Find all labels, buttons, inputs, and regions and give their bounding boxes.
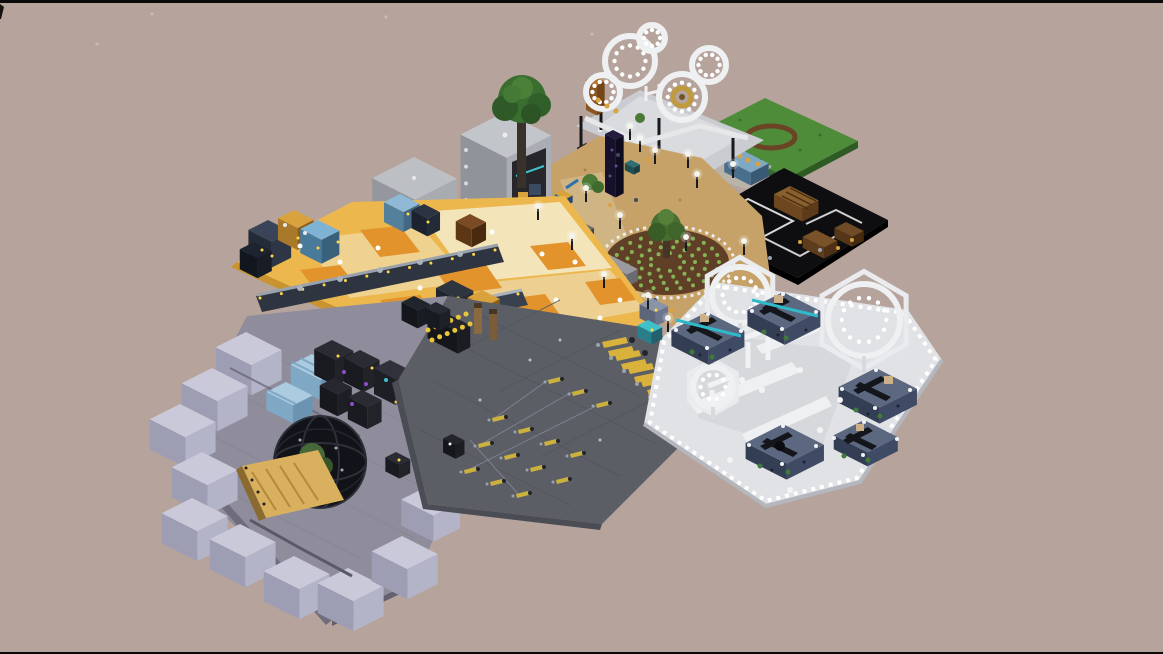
white-reactor-platform	[750, 309, 754, 313]
lamp-post	[617, 212, 623, 218]
mini-assembler	[504, 415, 508, 419]
lamp-post	[741, 238, 747, 244]
crops	[675, 280, 679, 284]
yellow-factory	[280, 292, 283, 295]
gray-machine-platform	[257, 491, 260, 494]
floor-light	[298, 244, 303, 249]
crops	[649, 257, 653, 261]
hex-ring	[727, 279, 731, 283]
yellow-factory	[337, 276, 343, 282]
hex-ring	[658, 36, 662, 40]
hex-ring	[742, 310, 746, 314]
black-platform	[818, 248, 822, 252]
hex-ring	[720, 293, 724, 297]
hex-ring	[641, 67, 645, 71]
mini-assembler	[502, 479, 506, 483]
hex-ring	[848, 335, 852, 339]
frame-bar-top	[0, 0, 1163, 3]
white-reactor-platform	[780, 327, 784, 331]
hex-ring	[882, 308, 886, 312]
crops	[691, 283, 695, 287]
crops	[637, 260, 641, 264]
lamp-post	[645, 292, 651, 298]
wood-post	[489, 312, 497, 340]
mini-assembler	[592, 405, 595, 408]
lamp-post	[652, 147, 658, 153]
gray-machine-platform	[364, 382, 368, 386]
white-reactor-platform	[814, 444, 818, 448]
dark-grid-platform	[464, 312, 469, 317]
hex-ring	[614, 51, 618, 55]
yellow-factory	[517, 293, 520, 296]
dust-speck	[95, 42, 98, 45]
hex-ring	[643, 59, 647, 63]
gray-machine-platform	[337, 355, 340, 358]
gray-machine-platform	[371, 367, 374, 370]
green-pad	[739, 119, 742, 122]
hex-ring	[882, 327, 886, 331]
white-reactor-platform	[832, 436, 836, 440]
crops	[691, 237, 695, 241]
hex-ring	[590, 90, 594, 94]
dark-grid-platform	[559, 339, 562, 342]
yellow-factory	[297, 285, 303, 291]
hex-ring	[867, 296, 871, 300]
crops	[640, 267, 644, 271]
dark-grid-platform	[479, 399, 482, 402]
lamp-post	[685, 151, 691, 157]
dark-grid-platform	[599, 439, 602, 442]
sand-plaza	[609, 175, 612, 178]
crops	[652, 286, 656, 290]
yellow-factory	[429, 262, 432, 265]
hex-ring	[857, 340, 861, 344]
crops	[620, 247, 624, 251]
hex-ring	[753, 285, 757, 289]
white-block	[837, 397, 843, 403]
crops	[649, 279, 653, 283]
sand-plaza	[611, 149, 614, 152]
white-reactor-platform	[781, 292, 785, 296]
crops	[678, 266, 682, 270]
gray-machine-platform	[263, 503, 266, 506]
wood-post	[474, 306, 482, 334]
mini-assembler	[500, 457, 503, 460]
crops	[697, 273, 701, 277]
hex-ring	[666, 95, 670, 99]
crops	[710, 247, 714, 251]
hex-ring	[701, 378, 705, 382]
hex-ring	[604, 80, 608, 84]
crops	[638, 275, 642, 279]
dark-grid-platform	[622, 369, 626, 373]
white-reactor-platform	[874, 368, 878, 372]
dust-speck	[384, 15, 387, 18]
upper-strip	[746, 158, 751, 163]
hex-ring	[644, 30, 648, 34]
hex-ring	[592, 84, 596, 88]
hex-ring	[755, 293, 759, 297]
yellow-factory	[377, 267, 383, 273]
hex-ring	[642, 36, 646, 40]
dark-grid-platform	[445, 331, 450, 336]
crops	[657, 268, 661, 272]
gen-chip	[690, 350, 695, 355]
hex-ring	[701, 392, 705, 396]
hex-ring	[598, 80, 602, 84]
hex-ring	[704, 53, 708, 57]
dark-grid-platform	[529, 359, 532, 362]
hex-ring	[842, 308, 846, 312]
hex-ring	[839, 318, 843, 322]
crops	[671, 245, 675, 249]
hex-ring	[667, 102, 671, 106]
hex-ring	[611, 90, 615, 94]
white-reactor-platform	[780, 462, 784, 466]
yellow-factory	[494, 249, 497, 252]
hex-gate	[614, 109, 619, 114]
white-reactor-platform	[674, 328, 678, 332]
hex-ring	[721, 392, 725, 396]
sand-plaza	[679, 199, 682, 202]
sand-plaza	[616, 153, 620, 157]
crops	[659, 245, 663, 249]
interior-machine	[529, 184, 541, 195]
mini-assembler	[568, 393, 571, 396]
hex-ring	[650, 44, 654, 48]
lamp-post	[535, 203, 541, 209]
white-block	[797, 367, 803, 373]
lamp-post	[730, 161, 736, 167]
mini-assembler	[566, 455, 569, 458]
hex-ring	[749, 279, 753, 283]
sand-plaza	[670, 308, 674, 312]
yellow-factory	[259, 297, 262, 300]
dust-speck	[590, 32, 593, 35]
hex-gate	[596, 98, 601, 103]
hex-ring	[867, 340, 871, 344]
white-reactor-platform	[840, 387, 844, 391]
white-reactor-platform	[861, 453, 865, 457]
hex-ring	[692, 88, 696, 92]
mini-assembler	[516, 453, 520, 457]
gray-machine-platform	[251, 479, 254, 482]
crops	[678, 286, 682, 290]
mini-assembler	[530, 427, 534, 431]
tree-canopy	[521, 104, 541, 124]
cube-buildings	[464, 181, 468, 185]
crops	[639, 283, 643, 287]
white-reactor-platform	[706, 312, 710, 316]
hex-ring	[655, 30, 659, 34]
hex-ring	[722, 300, 726, 304]
dark-grid-platform	[468, 322, 473, 327]
mini-assembler	[556, 439, 560, 443]
crops	[703, 253, 707, 257]
hex-ring	[655, 41, 659, 45]
hex-ring	[604, 100, 608, 104]
yellow-factory	[297, 237, 300, 240]
mini-assembler	[568, 477, 572, 481]
hex-ring	[721, 378, 725, 382]
yellow-factory	[365, 275, 368, 278]
sand-plaza	[608, 203, 612, 207]
yellow-factory	[323, 283, 326, 286]
gray-machine-platform	[398, 459, 401, 462]
hex-ring	[707, 373, 711, 377]
yellow-factory	[271, 255, 274, 258]
gray-machine-platform	[384, 378, 388, 382]
hex-ring	[673, 107, 677, 111]
hex-ring	[884, 318, 888, 322]
crops	[697, 247, 701, 251]
white-block	[727, 457, 733, 463]
crops	[638, 245, 642, 249]
crops	[687, 278, 691, 282]
gray-machine-platform	[335, 447, 338, 450]
mini-assembler	[582, 451, 586, 455]
gray-machine-platform	[341, 469, 344, 472]
black-platform	[836, 246, 840, 250]
hex-ring	[723, 385, 727, 389]
hex-ring	[742, 276, 746, 280]
mini-assembler	[552, 481, 555, 484]
mini-assembler	[512, 495, 515, 498]
crops	[715, 253, 719, 257]
hex-ring	[710, 53, 714, 57]
hex-ring	[727, 306, 731, 310]
hex-ring	[715, 69, 719, 73]
cube-buildings	[464, 148, 468, 152]
yellow-factory	[427, 221, 430, 224]
lamp-post	[637, 135, 643, 141]
hex-ring	[842, 327, 846, 331]
hex-ring	[609, 84, 613, 88]
dark-grid-platform	[426, 328, 431, 333]
hex-ring	[620, 72, 624, 76]
lamp-post	[694, 171, 700, 177]
sand-plaza	[646, 158, 650, 162]
crops	[615, 253, 619, 257]
cube-buildings	[464, 165, 468, 169]
crops	[675, 240, 679, 244]
black-platform	[798, 240, 802, 244]
hex-ring	[696, 63, 700, 67]
hex-ring	[704, 73, 708, 77]
gray-machine-platform	[350, 402, 354, 406]
crops	[678, 254, 682, 258]
lamp-post	[627, 123, 633, 129]
gen-chip	[854, 408, 859, 413]
gen-chip	[866, 458, 871, 463]
game-viewport[interactable]	[0, 0, 1163, 654]
sand-plaza	[634, 198, 638, 202]
white-reactor-platform	[771, 469, 774, 472]
hex-ring	[707, 397, 711, 401]
reactor-port	[856, 424, 864, 431]
yellow-factory	[303, 231, 307, 235]
dark-grid-platform	[474, 303, 482, 308]
crops	[630, 250, 634, 254]
dark-grid-platform	[489, 309, 497, 314]
dark-grid-platform	[437, 334, 442, 339]
mini-assembler	[528, 491, 532, 495]
yellow-factory	[451, 257, 454, 260]
white-reactor-platform	[651, 329, 654, 332]
hex-ring	[612, 59, 616, 63]
hex-ring	[715, 397, 719, 401]
floor-light	[338, 260, 343, 265]
crops	[648, 248, 652, 252]
crops	[671, 275, 675, 279]
hex-ring	[636, 72, 640, 76]
floor-light	[418, 286, 423, 291]
yellow-factory	[407, 213, 410, 216]
white-reactor-platform	[895, 437, 899, 441]
white-reactor-platform	[873, 406, 877, 410]
crops	[668, 269, 672, 273]
mini-assembler	[526, 469, 529, 472]
hex-ring	[710, 73, 714, 77]
white-reactor-platform	[814, 310, 818, 314]
black-platform	[850, 238, 854, 242]
floor-light	[376, 246, 381, 251]
gen-chip	[710, 355, 715, 360]
cube-buildings	[503, 133, 508, 138]
mini-assembler	[476, 467, 480, 471]
mini-assembler	[474, 445, 477, 448]
hex-ring	[687, 82, 691, 86]
crops	[639, 237, 643, 241]
hex-ring	[717, 63, 721, 67]
white-reactor-platform	[908, 388, 912, 392]
floor-light	[573, 260, 578, 265]
white-block	[817, 427, 823, 433]
scene-svg	[0, 0, 1163, 654]
crops	[703, 267, 707, 271]
crops	[687, 242, 691, 246]
hex-ring	[698, 57, 702, 61]
green-pad	[799, 149, 802, 152]
tree-canopy	[648, 223, 666, 241]
white-reactor-platform	[805, 329, 808, 332]
hex-ring	[734, 310, 738, 314]
crops	[640, 253, 644, 257]
yellow-factory	[344, 279, 347, 282]
hex-gate	[605, 104, 610, 109]
yellow-factory	[387, 270, 390, 273]
mini-assembler	[560, 377, 564, 381]
hex-ring	[734, 276, 738, 280]
gen-chip	[786, 470, 791, 475]
floor-light	[540, 252, 545, 257]
yellow-factory	[337, 241, 340, 244]
white-reactor-platform	[747, 443, 751, 447]
lamp-post	[665, 315, 671, 321]
white-block	[739, 377, 745, 383]
hex-ring	[614, 67, 618, 71]
hex-ring	[673, 82, 677, 86]
crops	[665, 287, 669, 291]
mini-assembler	[486, 483, 489, 486]
upper-strip	[756, 162, 761, 167]
hex-ring	[628, 74, 632, 78]
dark-grid-platform	[430, 338, 435, 343]
dark-grid-platform	[629, 337, 635, 343]
dark-grid-platform	[460, 325, 465, 330]
mini-assembler	[584, 389, 588, 393]
white-reactor-platform	[705, 346, 709, 350]
crops	[659, 275, 663, 279]
lamp-post	[569, 233, 575, 239]
white-reactor-platform	[739, 329, 743, 333]
bush	[592, 181, 604, 193]
crops	[657, 252, 661, 256]
hex-ring	[609, 96, 613, 100]
yellow-factory	[408, 266, 411, 269]
white-reactor-platform	[777, 334, 780, 337]
white-reactor-platform	[867, 413, 870, 416]
white-block	[787, 487, 793, 493]
yellow-factory	[261, 249, 264, 252]
white-block	[759, 387, 765, 393]
yellow-factory	[457, 251, 463, 257]
lamp-post	[583, 185, 589, 191]
gen-chip	[878, 414, 883, 419]
hex-ring	[680, 109, 684, 113]
floor-light	[490, 230, 495, 235]
hex-ring	[692, 102, 696, 106]
dark-grid-platform	[456, 315, 461, 320]
crops	[690, 253, 694, 257]
gen-chip	[784, 336, 789, 341]
sand-plaza	[584, 169, 587, 172]
hex-ring	[680, 81, 684, 85]
crops	[682, 260, 686, 264]
crops	[717, 260, 721, 264]
mini-assembler	[490, 441, 494, 445]
yellow-factory	[472, 253, 475, 256]
hex-ring	[876, 335, 880, 339]
white-reactor-platform	[699, 354, 702, 357]
floor-light	[618, 298, 623, 303]
white-reactor-platform	[803, 461, 806, 464]
black-platform	[768, 256, 772, 260]
mini-assembler	[608, 401, 612, 405]
dark-grid-platform	[609, 356, 613, 360]
mini-assembler	[544, 381, 547, 384]
hex-ring	[644, 41, 648, 45]
crops	[705, 260, 709, 264]
hex-ring	[620, 45, 624, 49]
hex-ring	[722, 285, 726, 289]
crops	[648, 272, 652, 276]
hex-ring	[848, 300, 852, 304]
dark-grid-platform	[642, 350, 648, 356]
gray-machine-platform	[245, 467, 248, 470]
tree-trunk	[517, 118, 526, 188]
crops	[628, 241, 632, 245]
mini-assembler	[488, 419, 491, 422]
crops	[649, 241, 653, 245]
mini-assembler	[542, 465, 546, 469]
mini-assembler	[514, 431, 517, 434]
tree-canopy	[658, 209, 674, 225]
white-reactor-platform	[781, 424, 785, 428]
crops	[662, 281, 666, 285]
crops	[693, 260, 697, 264]
crops	[626, 257, 630, 261]
